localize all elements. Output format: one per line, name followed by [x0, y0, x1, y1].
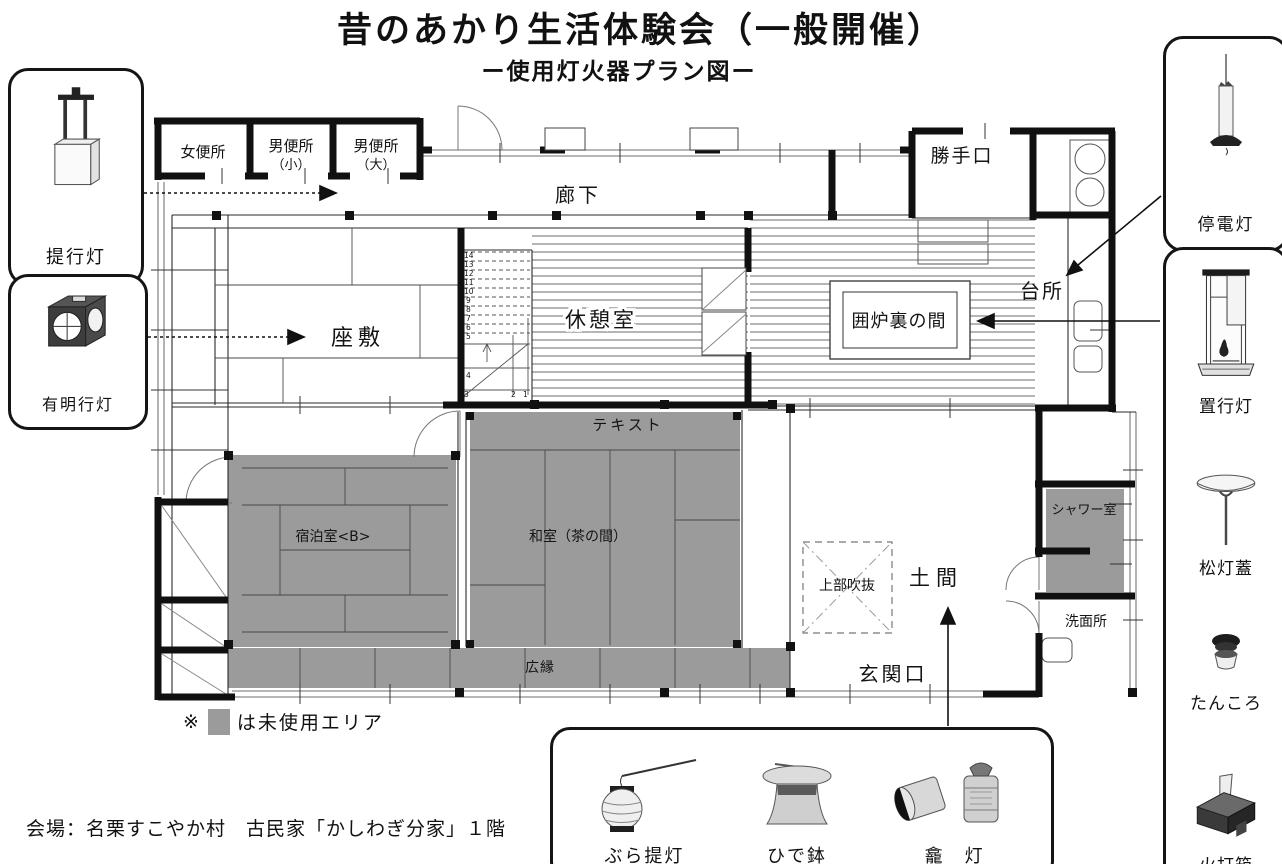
lamp-box-sage-andon: 提行灯 [8, 68, 144, 286]
lamp-label-sage: 提行灯 [46, 243, 106, 269]
sage-andon-icon [39, 83, 113, 193]
hide-bachi-icon [747, 754, 847, 840]
lamp-label-teiden: 停電灯 [1198, 210, 1255, 235]
stair-number: 10 [464, 287, 474, 296]
room-label-jobu-fukinuke: 上部吹抜 [819, 578, 875, 594]
room-label-onna-benjo: 女便所 [180, 143, 225, 161]
legend: ※ は未使用エリア [183, 708, 384, 735]
stair-number: 6 [466, 323, 471, 332]
legend-label: は未使用エリア [237, 708, 384, 735]
stair-number: 3 [464, 390, 469, 399]
lamp-label-oki: 置行灯 [1199, 392, 1253, 417]
lamp-label-gando: 龕 灯 [925, 842, 985, 864]
stair-number: 12 [464, 269, 474, 278]
stair-number: 4 [466, 371, 471, 380]
stair-number: 11 [464, 278, 474, 287]
stair-number: 5 [466, 332, 471, 341]
room-label-daidokoro: 台所 [1020, 279, 1064, 303]
room-label-doma: 土間 [909, 566, 963, 590]
legend-unused-swatch [208, 709, 230, 735]
room-label-hiroen: 広縁 [525, 660, 555, 676]
oki-andon-icon [1190, 266, 1262, 388]
venue-caption: 会場：名栗すこやか村 古民家「かしわぎ分家」１階 [26, 814, 506, 841]
room-label-kyukeishitsu: 休憩室 [565, 308, 637, 332]
lamp-label-shoto: 松灯蓋 [1199, 554, 1253, 579]
lamp-label-hiuchi: 火打箱 [1199, 851, 1253, 864]
room-label-washitsu: 和室（茶の間） [529, 528, 627, 545]
stair-number: 2 [511, 390, 516, 399]
room-label-genkanguchi: 玄関口 [859, 662, 928, 686]
gando-icon [890, 754, 1020, 840]
lamp-label-tankoro: たんころ [1190, 689, 1262, 714]
stair-number: 13 [464, 260, 474, 269]
stair-number: 1 [523, 390, 528, 399]
stair-number: 7 [466, 314, 471, 323]
arrow-teiden-to-kitchen [1072, 196, 1161, 270]
bura-chochin-icon [584, 754, 704, 840]
ariake-andon-icon [40, 287, 116, 355]
room-label-otoko-benjo-dai-sub: （大） [356, 158, 395, 173]
lamp-item-bura-chochin: ぶら提灯 [584, 754, 704, 864]
room-label-otoko-benjo-sho-sub: （小） [271, 158, 310, 173]
room-label-otoko-benjo-dai: 男便所 [353, 137, 398, 155]
room-label-shower: シャワー室 [1051, 502, 1116, 518]
lamp-item-oki-andon: 置行灯 [1190, 266, 1262, 417]
lamp-box-column: 置行灯 松灯蓋 たんころ [1163, 247, 1282, 864]
room-label-senmenjo: 洗面所 [1065, 614, 1107, 630]
room-label-zashiki: 座敷 [331, 326, 385, 351]
stair-number: 14 [464, 251, 474, 260]
lamp-item-shoto-gai: 松灯蓋 [1190, 466, 1262, 579]
room-label-roka: 廊下 [555, 183, 601, 207]
room-label-text-area: テキスト [592, 416, 664, 434]
lamp-box-bottom: ぶら提灯 ひで鉢 龕 灯 [550, 727, 1054, 864]
tankoro-icon [1193, 627, 1259, 685]
room-label-otoko-benjo-sho: 男便所 [268, 137, 313, 155]
hiuchi-bako-icon [1185, 763, 1267, 847]
lamp-label-bura: ぶら提灯 [604, 842, 684, 864]
room-label-shukuhaku-b: 宿泊室<B> [295, 528, 370, 545]
lamp-item-hide-bachi: ひで鉢 [747, 754, 847, 864]
teiden-to-icon [1191, 49, 1261, 161]
lamp-label-ariake: 有明行灯 [42, 391, 114, 415]
lamp-item-gando: 龕 灯 [890, 754, 1020, 864]
lamp-box-teiden-to: 停電灯 [1163, 36, 1282, 252]
shoto-gai-icon [1190, 466, 1262, 550]
lamp-item-hiuchi-bako: 火打箱 [1185, 763, 1267, 864]
stair-number: 8 [466, 305, 471, 314]
room-label-katteguchi: 勝手口 [930, 145, 993, 167]
lamp-item-tankoro: たんころ [1190, 627, 1262, 714]
stair-number: 9 [466, 296, 471, 305]
room-label-irori-no-ma: 囲炉裏の間 [852, 311, 947, 332]
lamp-box-ariake-andon: 有明行灯 [8, 274, 148, 430]
staircase: 14 13 12 11 10 9 8 7 6 5 4 3 2 1 [462, 251, 530, 399]
legend-marker: ※ [183, 711, 201, 733]
page: 昔のあかり生活体験会（一般開催） ー使用灯火器プラン図ー [0, 0, 1282, 864]
lamp-label-hide: ひで鉢 [767, 842, 827, 864]
